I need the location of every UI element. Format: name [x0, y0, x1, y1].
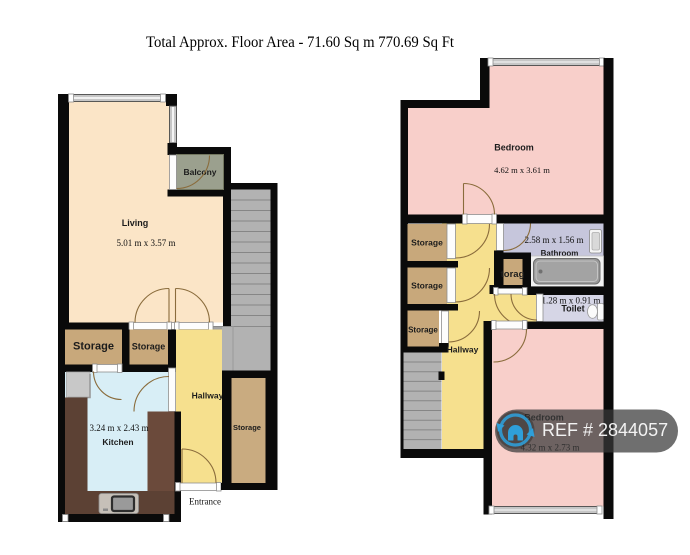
svg-text:Hallway: Hallway — [192, 391, 224, 401]
svg-text:Balcony: Balcony — [183, 167, 216, 177]
svg-text:Living: Living — [122, 218, 149, 228]
svg-text:Kitchen: Kitchen — [102, 437, 133, 447]
svg-text:Storage: Storage — [132, 342, 166, 352]
svg-text:Toilet: Toilet — [561, 304, 584, 314]
svg-text:torag: torag — [501, 269, 525, 280]
svg-text:Total Approx. Floor Area - 71.: Total Approx. Floor Area - 71.60 Sq m 77… — [146, 34, 455, 51]
svg-text:Hallway: Hallway — [447, 345, 479, 355]
svg-text:4.62 m x 3.61 m: 4.62 m x 3.61 m — [494, 165, 550, 175]
svg-text:Entrance: Entrance — [189, 497, 221, 507]
svg-text:Bedroom: Bedroom — [494, 143, 534, 153]
svg-text:Storage: Storage — [233, 423, 261, 432]
svg-text:Storage: Storage — [411, 238, 443, 248]
svg-text:Storage: Storage — [408, 326, 438, 335]
svg-text:2.58 m x 1.56 m: 2.58 m x 1.56 m — [524, 235, 583, 245]
svg-text:5.01 m x 3.57 m: 5.01 m x 3.57 m — [116, 238, 175, 248]
svg-text:Storage: Storage — [411, 281, 443, 291]
svg-text:3.24 m x 2.43 m: 3.24 m x 2.43 m — [89, 423, 148, 433]
svg-text:Storage: Storage — [73, 341, 114, 353]
svg-text:REF # 2844057: REF # 2844057 — [542, 420, 668, 440]
